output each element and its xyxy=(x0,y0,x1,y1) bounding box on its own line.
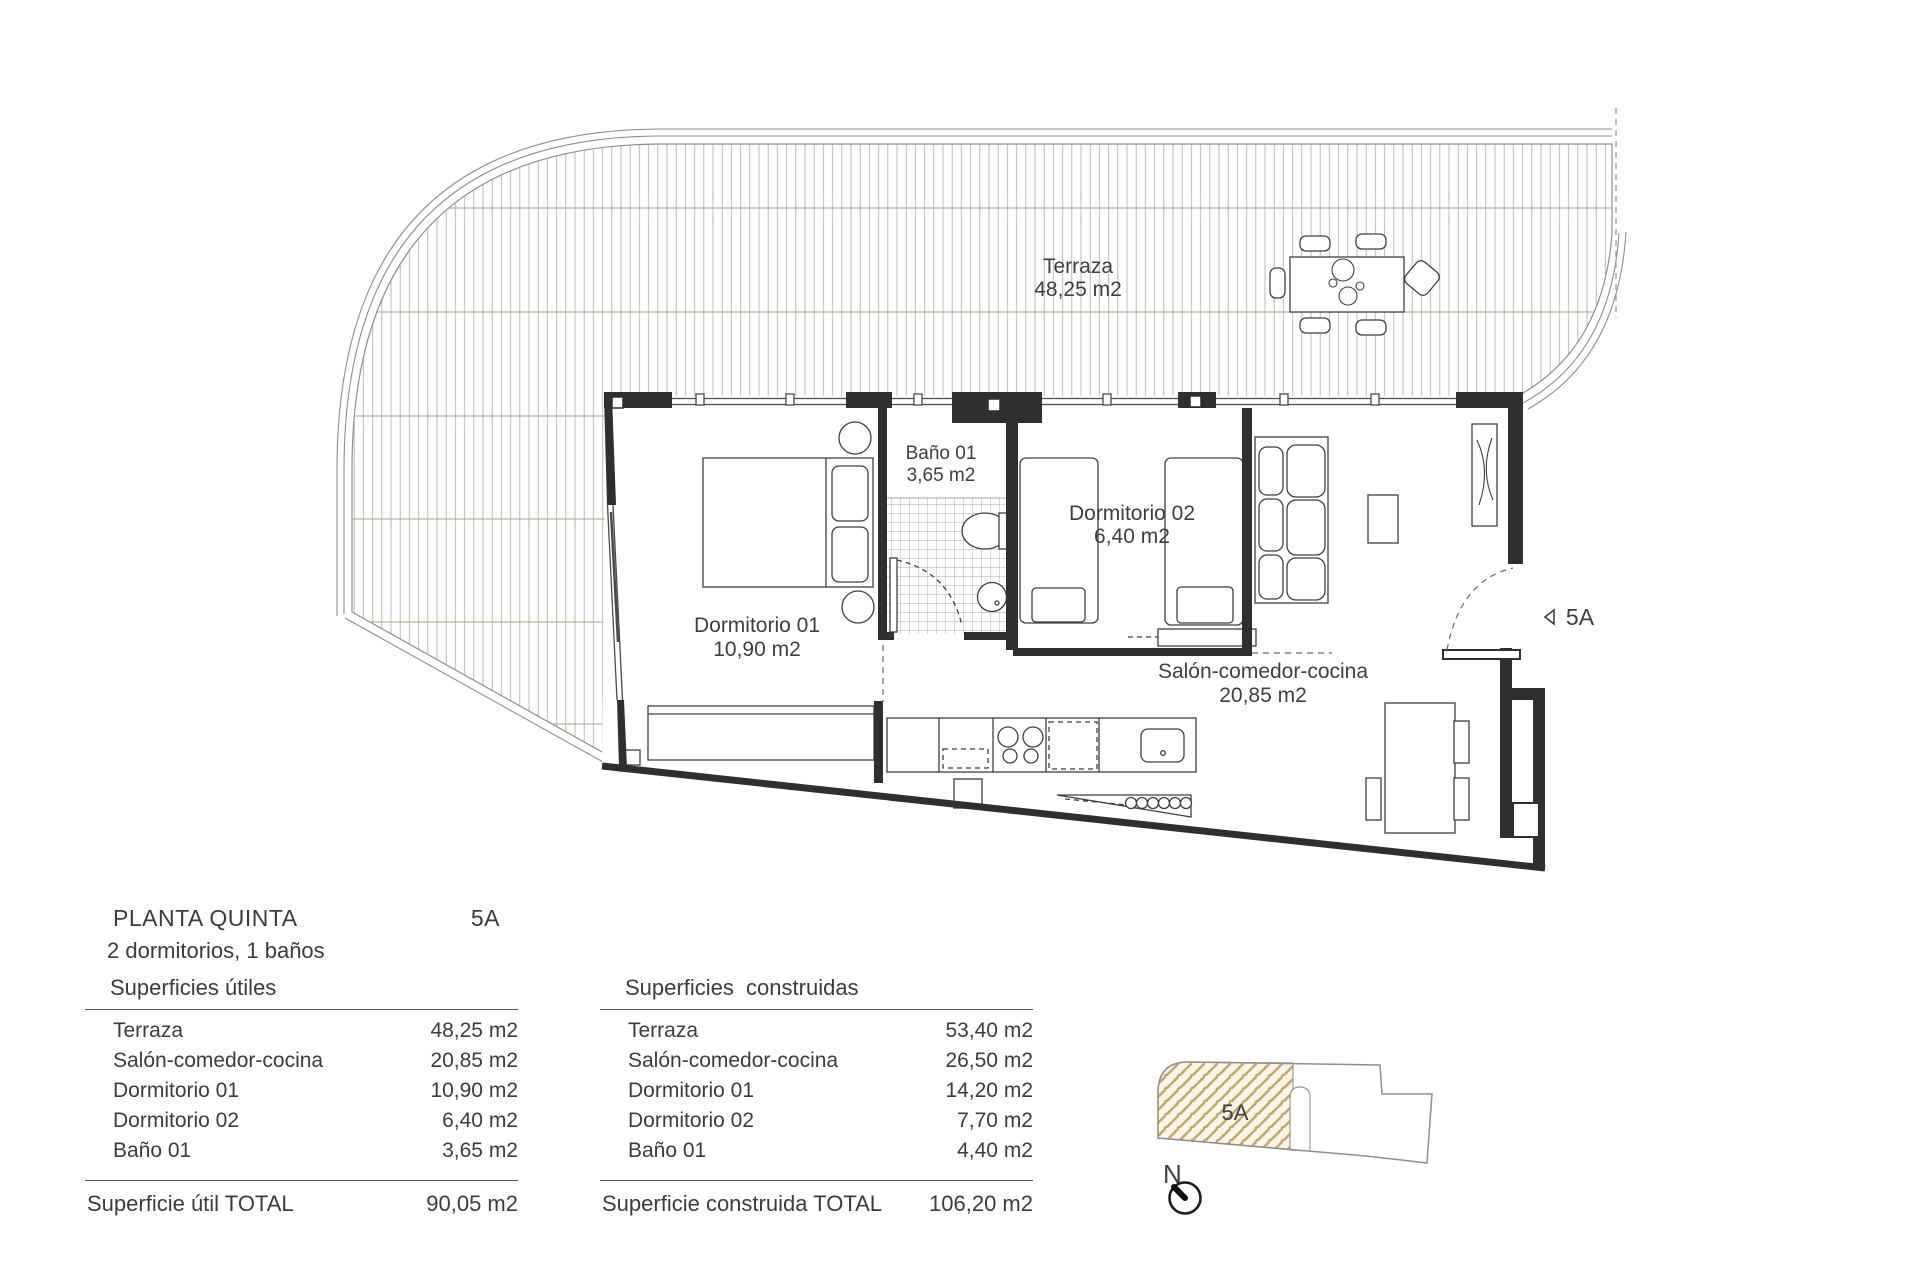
room-label-bano: Baño 01 3,65 m2 xyxy=(906,443,977,486)
svg-text:Terraza: Terraza xyxy=(1043,255,1113,278)
table-row: Dormitorio 01 10,90 m2 xyxy=(85,1076,518,1106)
table-header: Superficies construidas xyxy=(600,975,1033,1001)
floorplan-page: Terraza 48,25 m2 Baño 01 3,65 m2 Dormito… xyxy=(0,0,1920,1280)
rule xyxy=(600,1009,1033,1010)
rule xyxy=(85,1009,518,1010)
entry-door-leaf xyxy=(1443,650,1520,659)
coffee-table xyxy=(1368,495,1398,543)
dishwasher-dashed xyxy=(1049,722,1097,769)
keyplan-core xyxy=(1290,1087,1310,1151)
keyplan: 5A N xyxy=(1140,1050,1510,1235)
column xyxy=(1190,396,1201,407)
kitchen-counter xyxy=(887,718,1196,772)
table-body: Terraza 53,40 m2 Salón-comedor-cocina 26… xyxy=(600,1016,1033,1166)
chair xyxy=(1356,320,1386,335)
svg-text:Dormitorio 02: Dormitorio 02 xyxy=(1069,502,1195,525)
rule xyxy=(600,1180,1033,1181)
plan-info-block: PLANTA QUINTA 5A 2 dormitorios, 1 baños xyxy=(85,905,518,964)
entry-unit-label: 5A xyxy=(1566,604,1595,630)
table-total-row: Superficie útil TOTAL 90,05 m2 xyxy=(85,1189,518,1219)
table-superficies-construidas: Superficies construidas Terraza 53,40 m2… xyxy=(600,975,1033,1219)
table-row: Terraza 48,25 m2 xyxy=(85,1016,518,1046)
table-header: Superficies útiles xyxy=(85,975,518,1001)
table-row: Salón-comedor-cocina 20,85 m2 xyxy=(85,1046,518,1076)
unit-badge: 5A xyxy=(471,905,518,932)
page-title: PLANTA QUINTA xyxy=(85,905,298,932)
tv-cabinet xyxy=(1472,424,1497,526)
chair xyxy=(1270,268,1285,298)
kitchen-sink xyxy=(1141,729,1184,762)
table-row: Terraza 53,40 m2 xyxy=(600,1016,1033,1046)
rule xyxy=(85,1180,518,1181)
svg-text:6,40 m2: 6,40 m2 xyxy=(1094,525,1170,548)
table-row: Dormitorio 02 6,40 m2 xyxy=(85,1106,518,1136)
appliance-dashed xyxy=(943,749,988,768)
svg-text:10,90 m2: 10,90 m2 xyxy=(713,638,801,661)
svg-text:Salón-comedor-cocina: Salón-comedor-cocina xyxy=(1158,660,1368,683)
single-bed xyxy=(1165,458,1243,625)
entry-marker: 5A xyxy=(1545,604,1595,630)
bedside-table xyxy=(839,422,871,454)
compass-needle-icon xyxy=(1174,1187,1185,1198)
sofa xyxy=(1255,437,1328,603)
plan-subtitle: 2 dormitorios, 1 baños xyxy=(85,938,518,964)
keyplan-unit-label: 5A xyxy=(1222,1100,1249,1125)
table-row: Salón-comedor-cocina 26,50 m2 xyxy=(600,1046,1033,1076)
entry-arrow-icon xyxy=(1545,610,1554,624)
table-row: Baño 01 4,40 m2 xyxy=(600,1136,1033,1166)
table-total-row: Superficie construida TOTAL 106,20 m2 xyxy=(600,1189,1033,1219)
table-row: Dormitorio 01 14,20 m2 xyxy=(600,1076,1033,1106)
svg-text:Dormitorio 01: Dormitorio 01 xyxy=(694,614,820,637)
column xyxy=(988,399,1000,411)
svg-text:48,25 m2: 48,25 m2 xyxy=(1034,278,1122,301)
table-row: Dormitorio 02 7,70 m2 xyxy=(600,1106,1033,1136)
duct-shaft xyxy=(1513,803,1539,837)
washbasin xyxy=(978,583,1007,612)
column xyxy=(612,397,623,408)
toilet xyxy=(962,513,1008,549)
svg-text:20,85 m2: 20,85 m2 xyxy=(1219,684,1307,707)
table-row: Baño 01 3,65 m2 xyxy=(85,1136,518,1166)
chair xyxy=(1356,234,1386,249)
room-label-terraza: Terraza 48,25 m2 xyxy=(1034,255,1122,301)
bedside-table xyxy=(842,591,874,623)
chair xyxy=(1300,236,1330,251)
chair xyxy=(1300,318,1330,333)
table-superficies-utiles: Superficies útiles Terraza 48,25 m2 Saló… xyxy=(85,975,518,1219)
single-bed xyxy=(1020,458,1098,623)
compass: N xyxy=(1163,1159,1201,1214)
svg-text:3,65 m2: 3,65 m2 xyxy=(907,465,976,486)
table-body: Terraza 48,25 m2 Salón-comedor-cocina 20… xyxy=(85,1016,518,1166)
svg-text:Baño 01: Baño 01 xyxy=(906,443,977,464)
